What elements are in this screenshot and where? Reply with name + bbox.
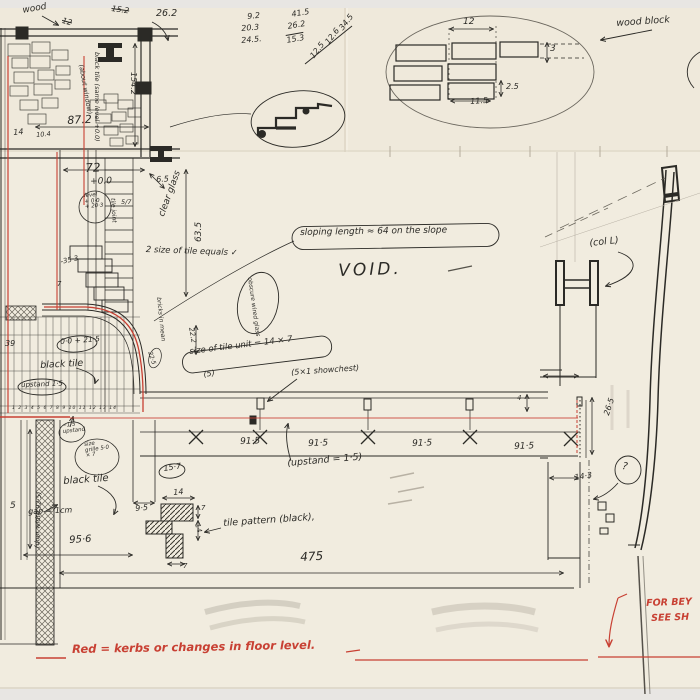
sketch-photo: wood15.226.2129.220.324.5.41.526.215.334…: [0, 0, 700, 700]
dim-7-b: 7: [183, 563, 187, 570]
wb-dim-2-5: 2.5: [506, 83, 519, 91]
dim-9-5: 9·5: [135, 504, 148, 513]
note-showchest: (5×1 showchest): [291, 364, 359, 377]
note-black-tile-mid: black tile: [40, 359, 84, 371]
note-door-width: (door width 92·5): [34, 492, 43, 549]
dim-15-7: 15·7: [163, 463, 182, 474]
dim-14: 14: [13, 128, 24, 137]
note-col-l: (col L): [589, 236, 619, 249]
calc-sub-3: 15.3: [286, 34, 305, 45]
note-tile-pattern: tile pattern (black),: [223, 513, 315, 529]
note-about-window: (about window): [77, 64, 92, 115]
dim-475: 475: [300, 550, 324, 563]
dim-95-6: 95·6: [69, 535, 92, 546]
calc-col-2: 20.3: [241, 23, 259, 33]
calc-diag-2: 12.6: [324, 27, 341, 46]
dim-5: 5: [10, 502, 16, 511]
calc-col-1: 9.2: [247, 12, 260, 21]
dim-5-7: 5/7: [121, 199, 131, 206]
annotation-labels: wood15.226.2129.220.324.5.41.526.215.334…: [0, 0, 700, 700]
dim-87-2: 87.2: [67, 114, 92, 126]
note-for-beyond-1: FOR BEY: [646, 597, 692, 608]
note-black-tile-bottom: black tile: [63, 474, 109, 487]
note-2-size: 2 size of tile equals ✓: [146, 246, 238, 258]
dim-5-paren: (5): [203, 369, 215, 379]
dim-0-0-21-5: 0·0 + 21·5: [60, 335, 100, 345]
dim-63-5: 63.5: [195, 222, 204, 242]
note-black-tile-level: black tile (same level +0.0): [93, 52, 100, 142]
dim-91-5-1: 91·5: [240, 437, 260, 447]
dim-26-2: 26.2: [156, 9, 177, 19]
dim-91-5-2: 91·5: [308, 439, 328, 449]
dim-35-3: -35·3: [60, 255, 79, 266]
dim-12-struck: 12: [61, 17, 73, 28]
dim-14-c: 14: [193, 523, 202, 533]
note-wood: wood: [22, 3, 47, 16]
dim-22-2: 22.2: [187, 327, 197, 344]
note-gap: gap ≈ 1cm: [28, 506, 72, 516]
dim-10-4: 10.4: [36, 131, 51, 139]
calc-sub-1: 41.5: [291, 8, 310, 19]
wb-dim-11-5: 11.5: [470, 97, 488, 106]
note-clear-glass: clear glass: [158, 170, 183, 218]
dim-26-5: 26·5: [603, 397, 616, 416]
note-tile-joint: tile joint: [109, 198, 117, 223]
note-void: VOID.: [338, 261, 402, 281]
note-upstand-mid: upstand 1·5: [21, 381, 63, 390]
calc-sub-2: 26.2: [287, 20, 306, 31]
note-obscure-glass: obscure wired glass: [246, 277, 260, 337]
note-for-beyond-2: SEE SH: [651, 613, 689, 624]
dim-4: 4: [517, 395, 521, 402]
note-bricks: bricks in mean: [155, 297, 166, 342]
dim-91-5-4: 91·5: [514, 442, 534, 452]
note-grille: size grille 5·0 × 7: [84, 440, 110, 460]
wb-dim-3: 3: [550, 45, 556, 54]
grid-numbers: 1 2 3 4 5 6 7 8 9 10 11 12 13 14: [12, 407, 117, 412]
dim-7-mid: 7: [57, 281, 61, 288]
calc-diag-3: 12.5: [309, 41, 326, 60]
dim-14-3: 14·3: [574, 472, 593, 483]
legend-red: Red = kerbs or changes in floor level.: [72, 640, 315, 656]
calc-col-3: 24.5.: [241, 35, 262, 45]
dim-154-2: 154.2: [129, 72, 137, 95]
note-level-circle: level + 0·0 + 20·3: [84, 193, 104, 211]
note-wood-block: wood block: [616, 15, 670, 28]
note-upstand-2: (upstand = 1·5): [287, 452, 363, 468]
calc-diag-1: 34.5: [338, 13, 355, 32]
note-tile-unit: size of tile unit = 14 × 7: [189, 335, 293, 356]
dim-15-2: 15.2: [111, 5, 130, 16]
note-sloping-length: sloping length ≈ 64 on the slope: [300, 226, 447, 238]
dim-0-0: +0.0: [90, 177, 112, 187]
mark-question: ?: [621, 462, 628, 473]
dim-7-a: 7: [201, 505, 205, 512]
dim-6-5: 6.5: [156, 175, 169, 184]
note-upstand-circle: −1·5 upstand: [62, 422, 85, 435]
dim-22-5: 22·5: [146, 351, 156, 366]
dim-39: 39: [5, 340, 15, 348]
dim-72: 72: [85, 161, 101, 174]
wb-dim-12: 12: [463, 18, 474, 27]
dim-14-b: 14: [173, 488, 184, 497]
dim-91-5-3: 91·5: [412, 439, 432, 449]
